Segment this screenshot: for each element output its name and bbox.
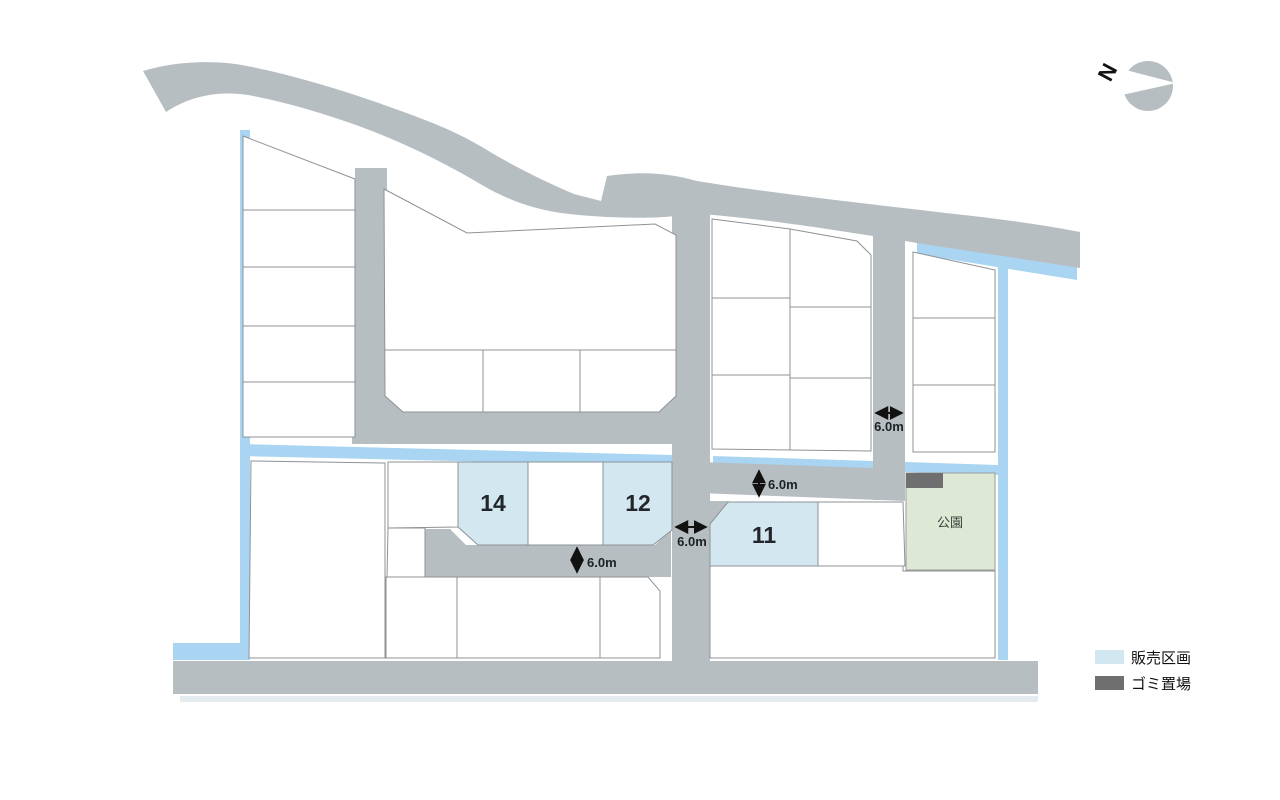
lot-parcel — [710, 566, 995, 658]
road-horizontal-upper — [352, 410, 672, 444]
dimension-label: 6.0m — [587, 555, 617, 570]
block-north-central — [384, 189, 676, 412]
lot-parcel — [913, 252, 995, 452]
block-northeast-b — [913, 252, 995, 452]
road-vertical-center — [672, 205, 710, 663]
lot-parcel — [528, 462, 603, 545]
lot-parcel — [243, 267, 355, 326]
legend: 販売区画 ゴミ置場 — [1095, 650, 1191, 693]
lot-parcel — [712, 219, 871, 451]
water-bottom-left-channel — [173, 643, 250, 660]
site-plan: 14 12 11 公園 6.0m 6.0m 6.0m 6.0m N 販売区画 ゴ… — [0, 0, 1280, 800]
lot-parcel — [243, 326, 355, 382]
compass-north-label: N — [1093, 59, 1123, 85]
legend-swatch-garbage — [1095, 676, 1124, 690]
dimension-label: 6.0m — [768, 477, 798, 492]
site-plan-canvas: 14 12 11 公園 6.0m 6.0m 6.0m 6.0m N 販売区画 ゴ… — [0, 0, 1280, 800]
lot-parcel — [243, 136, 355, 210]
legend-label-garbage: ゴミ置場 — [1131, 675, 1191, 693]
garbage-station — [906, 473, 943, 488]
lot-parcel — [388, 462, 458, 528]
road-vertical-east — [873, 226, 905, 500]
dimension-label: 6.0m — [677, 534, 707, 549]
lot-parcel — [243, 210, 355, 267]
block-northwest — [243, 136, 355, 437]
lot-parcel — [600, 577, 660, 658]
lot-parcel — [386, 577, 457, 658]
road-bottom — [173, 661, 1038, 694]
park-area: 公園 — [906, 473, 995, 570]
dimension-label: 6.0m — [874, 419, 904, 434]
sale-lot-11-number: 11 — [752, 522, 777, 548]
lot-parcel — [457, 577, 600, 658]
lot-parcel — [387, 528, 425, 577]
lot-parcel — [818, 502, 905, 566]
lot-parcel — [249, 461, 385, 658]
park-label: 公園 — [937, 515, 963, 530]
road-vertical-west — [355, 168, 387, 443]
legend-label-sale: 販売区画 — [1131, 650, 1191, 667]
sale-lot-14-number: 14 — [480, 490, 506, 516]
compass: N — [1093, 59, 1176, 111]
block-northeast-a — [712, 219, 871, 451]
water-right-channel — [998, 254, 1008, 660]
road-bottom-shadow — [180, 696, 1038, 702]
legend-swatch-sale — [1095, 650, 1124, 664]
lot-parcel — [243, 382, 355, 437]
sale-lot-12-number: 12 — [625, 490, 651, 516]
lot-parcel — [384, 189, 676, 412]
